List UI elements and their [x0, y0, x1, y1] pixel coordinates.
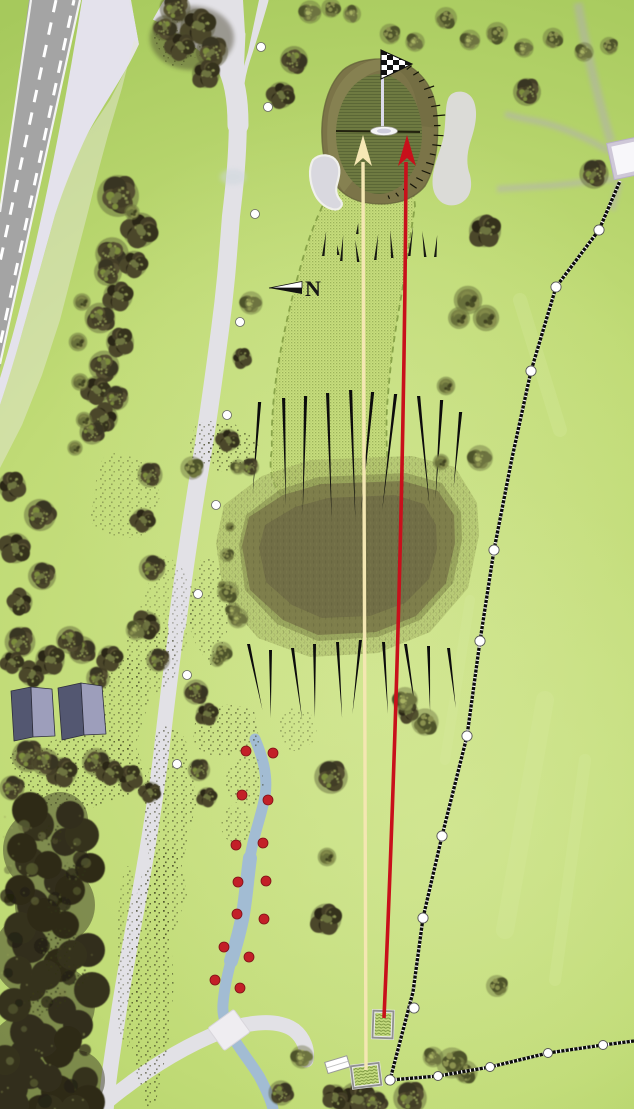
svg-text:N: N: [305, 276, 321, 301]
